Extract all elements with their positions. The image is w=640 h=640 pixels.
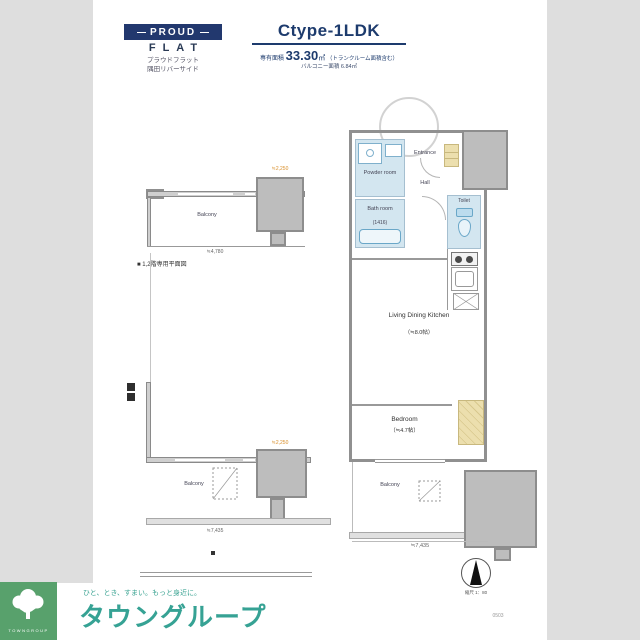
ac-unit-icon (418, 480, 441, 502)
compass-scale-label: 縮尺 1：80 (446, 590, 506, 596)
burner-icon (455, 256, 462, 263)
burner-icon (466, 256, 473, 263)
proud-logo-text: PROUD (150, 27, 196, 38)
area-value: 33.30 (286, 48, 319, 63)
flat-logo-text: FLAT (124, 41, 222, 55)
compass-needle-icon (461, 558, 491, 588)
upper-balcony-label: Balcony (185, 212, 229, 219)
upper-plan-highlight-dim: ≒2,250 (252, 166, 308, 173)
lower-plan-side-wall (146, 382, 151, 460)
upper-dim-text: ≒4,780 (180, 249, 250, 256)
lower-balcony-edge-bar (146, 518, 331, 525)
toilet-label: Toilet (449, 198, 479, 205)
building-edge-line (150, 253, 151, 383)
column-hatch-mark (127, 393, 135, 401)
floorplan-page: PROUD FLAT プラウドフラット 隅田リバーサイド Ctype-1LDK … (0, 0, 640, 640)
balcony-side-line (352, 462, 353, 534)
tree-icon (8, 586, 48, 622)
bedroom-label: Bedroom (352, 416, 457, 424)
stove-icon (451, 252, 478, 266)
right-margin-band (547, 0, 640, 640)
section-mark-dot (211, 551, 215, 555)
upper-plan-window (245, 193, 255, 195)
proud-logo-badge: PROUD (124, 24, 222, 40)
area-prefix: 専有面積 (260, 56, 284, 62)
lower-dim-text: ≒7,435 (180, 528, 250, 535)
badge-dash-icon (137, 32, 146, 33)
wet-ldk-partition (352, 258, 447, 260)
closet (458, 400, 484, 445)
area-line: 専有面積 33.30㎡ （トランクルーム面積含む） (230, 48, 428, 65)
toilet-tank-icon (456, 208, 473, 217)
lower-plan-block (256, 449, 307, 498)
lower-plan-highlight-dim: ≒2,250 (252, 440, 308, 447)
kitchen-sink-icon (455, 271, 474, 287)
shoe-cabinet (444, 144, 459, 167)
upper-plan-block (256, 177, 304, 232)
adjacent-unit-stem-bottom (494, 548, 511, 561)
main-dim-line (352, 541, 488, 542)
ldk-size-label: （≒8.0帖） (377, 330, 461, 337)
hall-label: Hall (410, 180, 440, 187)
bedroom-window (375, 459, 445, 463)
bath-room-label: Bath room (358, 206, 402, 213)
area-sub-line: バルコニー面積 6.84㎡ (230, 64, 428, 71)
left-margin-band (0, 0, 93, 583)
area-note: （トランクルーム面積含む） (327, 56, 398, 62)
bath-size-label: (1416) (358, 220, 402, 227)
washing-machine-icon (358, 143, 382, 164)
towngroup-logo-box: TOWNGROUP (0, 582, 57, 640)
washer-drum-icon (366, 149, 374, 157)
adjacent-unit-block-top (462, 130, 508, 190)
area-unit: ㎡ (318, 55, 325, 62)
vanity-sink-icon (385, 144, 402, 157)
footer-rule-line (140, 576, 312, 577)
footer-brand-wordmark: タウングループ (79, 597, 266, 634)
powder-room-label: Powder room (358, 170, 402, 177)
footer-rule-line (140, 572, 312, 573)
towngroup-logo-caption: TOWNGROUP (0, 628, 57, 633)
main-balcony-label: Balcony (368, 482, 412, 489)
bathtub-icon (359, 229, 401, 244)
shaft-x-box-icon (453, 293, 479, 310)
plan-code: 0503 (483, 613, 513, 620)
ldk-label: Living Dining Kitchen (377, 312, 461, 320)
column-hatch-mark (127, 383, 135, 391)
bedroom-size-label: （≒4.7帖） (352, 428, 457, 435)
badge-dash-icon (200, 32, 209, 33)
ldk-bedroom-partition (352, 404, 452, 406)
property-name-line1: プラウドフラット (124, 57, 222, 65)
lower-balcony-label: Balcony (172, 481, 216, 488)
upper-plan-note: ■ 1,2階専用平面図 (137, 262, 257, 270)
upper-dim-line (147, 246, 305, 247)
lower-plan-window (243, 459, 255, 461)
main-dim-text: ≒7,435 (360, 543, 480, 550)
ac-unit-icon (212, 467, 238, 500)
upper-plan-block-stem (270, 232, 286, 246)
compass-circle (461, 558, 491, 588)
upper-plan-side-wall (147, 197, 151, 247)
title-underline (252, 43, 406, 45)
adjacent-unit-block-bottom (464, 470, 537, 548)
lower-plan-window (175, 459, 225, 461)
upper-plan-window (178, 193, 233, 195)
lower-plan-block-stem (270, 498, 285, 520)
property-name-line2: 隅田リバーサイド (124, 66, 222, 74)
entrance-label: Entrance (405, 150, 445, 157)
unit-type-title: Ctype-1LDK (248, 20, 410, 42)
